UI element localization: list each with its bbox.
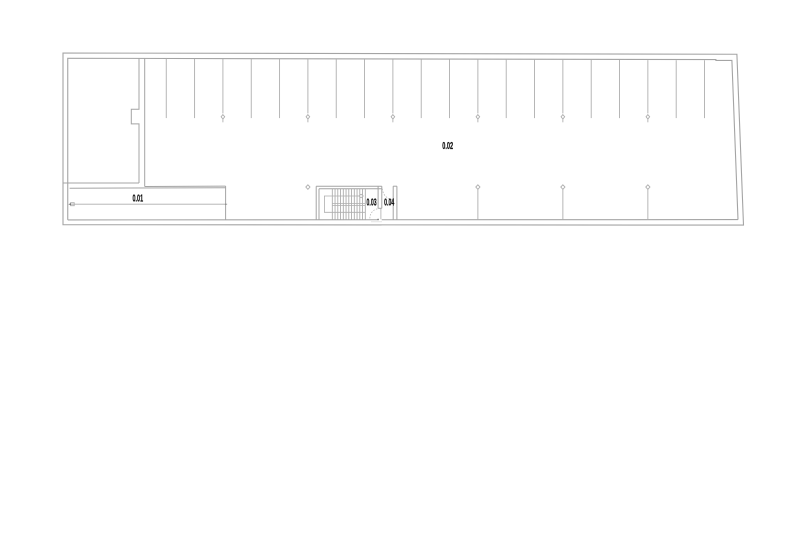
svg-text:0.03: 0.03 — [367, 198, 377, 209]
svg-text:0.02: 0.02 — [442, 140, 453, 152]
svg-text:0.01: 0.01 — [133, 193, 144, 205]
svg-text:0.04: 0.04 — [384, 198, 394, 209]
